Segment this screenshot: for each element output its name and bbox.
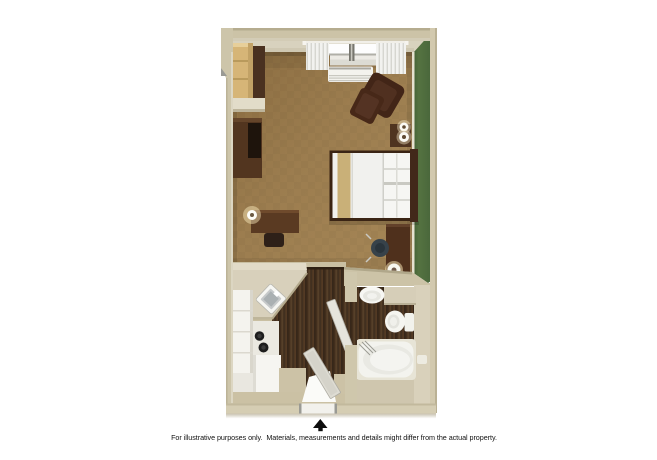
svg-text:For illustrative purposes only: For illustrative purposes only. Material… [171,433,497,442]
